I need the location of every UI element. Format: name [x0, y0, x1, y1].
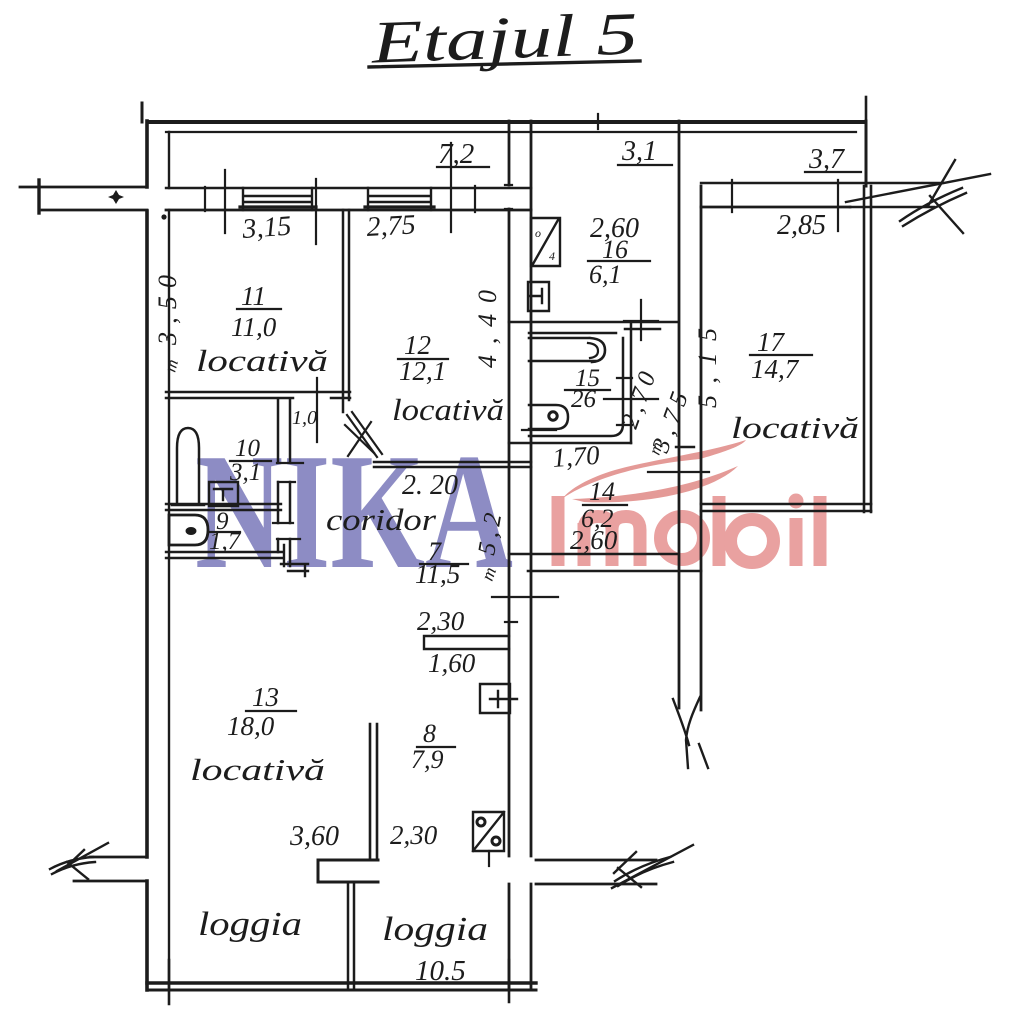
- svg-text:4: 4: [549, 249, 555, 263]
- svg-text:11: 11: [241, 281, 266, 311]
- svg-text:3,15: 3,15: [240, 211, 292, 245]
- svg-text:3,1: 3,1: [621, 136, 657, 167]
- svg-text:10.5: 10.5: [415, 955, 466, 987]
- svg-text:locativă: locativă: [190, 752, 325, 787]
- svg-text:2,75: 2,75: [366, 209, 417, 243]
- svg-text:coridor: coridor: [326, 502, 437, 537]
- svg-text:2,30: 2,30: [417, 606, 465, 636]
- svg-text:8: 8: [423, 719, 436, 748]
- svg-text:14,7: 14,7: [751, 354, 800, 384]
- svg-text:11,0: 11,0: [231, 312, 277, 342]
- svg-text:3,60: 3,60: [289, 821, 339, 852]
- svg-text:14: 14: [589, 477, 615, 506]
- svg-text:3,1: 3,1: [229, 459, 261, 486]
- svg-text:17: 17: [757, 327, 786, 357]
- svg-text:1,0: 1,0: [292, 407, 317, 429]
- svg-text:locativă: locativă: [392, 392, 504, 427]
- svg-text:6,1: 6,1: [589, 260, 622, 289]
- svg-text:2,60: 2,60: [570, 525, 618, 555]
- svg-text:18,0: 18,0: [227, 711, 275, 741]
- svg-text:2,85: 2,85: [777, 210, 826, 241]
- svg-text:7,9: 7,9: [411, 745, 444, 774]
- svg-text:3,7: 3,7: [808, 144, 845, 175]
- svg-text:7,2: 7,2: [438, 138, 474, 170]
- svg-text:13: 13: [252, 682, 279, 712]
- svg-text:2. 20: 2. 20: [402, 470, 458, 501]
- svg-text:10: 10: [235, 435, 261, 462]
- svg-text:12,1: 12,1: [399, 356, 446, 386]
- svg-text:loggia: loggia: [198, 906, 302, 943]
- svg-text:locativă: locativă: [196, 343, 328, 378]
- svg-text:locativă: locativă: [731, 410, 859, 445]
- svg-text:loggia: loggia: [382, 911, 488, 948]
- svg-text:1,70: 1,70: [551, 440, 601, 473]
- svg-text:o: o: [535, 226, 541, 240]
- svg-text:2,30: 2,30: [390, 820, 438, 850]
- svg-text:1,60: 1,60: [428, 648, 476, 678]
